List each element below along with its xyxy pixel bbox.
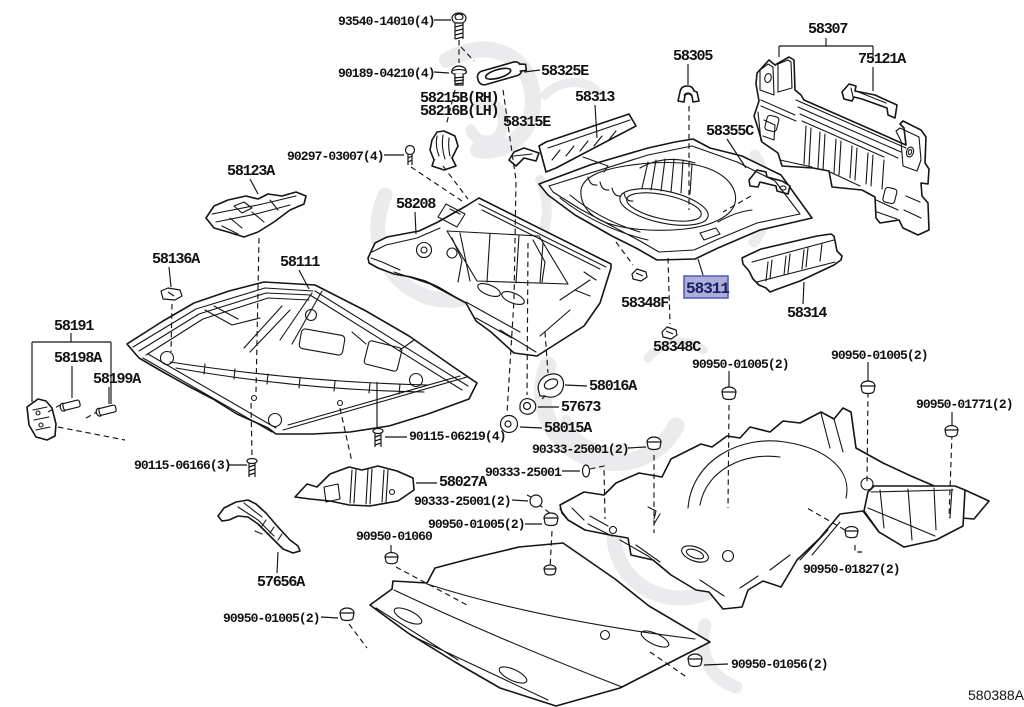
svg-text:90333-25001(2): 90333-25001(2) [532,442,629,457]
svg-text:58325E: 58325E [541,63,589,80]
svg-text:90189-04210(4): 90189-04210(4) [338,66,435,81]
svg-text:90115-06219(4): 90115-06219(4) [409,429,506,444]
svg-text:58027A: 58027A [439,474,487,491]
svg-text:57656A: 57656A [257,574,305,591]
svg-text:580388A: 580388A [968,687,1024,703]
svg-text:58111: 58111 [280,254,320,271]
svg-text:58015A: 58015A [544,420,592,437]
svg-text:90950-01005(2): 90950-01005(2) [692,357,789,372]
svg-text:58307: 58307 [808,21,847,38]
svg-text:90950-01771(2): 90950-01771(2) [916,397,1013,412]
svg-text:90115-06166(3): 90115-06166(3) [134,458,231,473]
svg-text:58311: 58311 [686,280,729,298]
svg-text:58208: 58208 [396,196,436,213]
svg-text:58313: 58313 [575,89,615,106]
svg-text:58348C: 58348C [653,339,701,356]
svg-text:90950-01060: 90950-01060 [356,529,433,544]
svg-text:58016A: 58016A [589,378,637,395]
svg-text:90333-25001: 90333-25001 [485,465,562,480]
svg-text:58198A: 58198A [54,350,102,367]
svg-text:90950-01005(2): 90950-01005(2) [831,348,928,363]
svg-text:90950-01005(2): 90950-01005(2) [428,517,525,532]
svg-text:58315E: 58315E [503,114,551,131]
svg-text:75121A: 75121A [858,51,906,68]
svg-text:58348F: 58348F [621,295,669,312]
svg-text:58123A: 58123A [227,163,275,180]
svg-text:93540-14010(4): 93540-14010(4) [338,14,435,29]
svg-text:58355C: 58355C [706,123,754,140]
svg-text:58216B(LH): 58216B(LH) [420,103,499,120]
svg-text:90950-01827(2): 90950-01827(2) [803,562,900,577]
svg-text:90950-01056(2): 90950-01056(2) [731,657,828,672]
svg-text:90950-01005(2): 90950-01005(2) [223,611,320,626]
svg-text:57673: 57673 [561,399,601,416]
svg-text:90297-03007(4): 90297-03007(4) [287,149,384,164]
svg-text:58305: 58305 [673,48,713,65]
svg-text:58199A: 58199A [93,371,141,388]
svg-text:58314: 58314 [787,305,827,322]
svg-text:58191: 58191 [54,318,94,335]
svg-text:90333-25001(2): 90333-25001(2) [414,494,511,509]
svg-text:58136A: 58136A [152,251,200,268]
